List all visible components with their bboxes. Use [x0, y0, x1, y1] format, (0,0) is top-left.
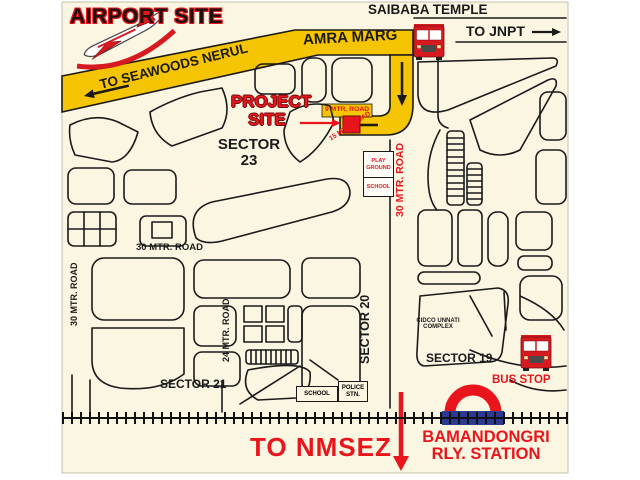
bus-icon-busstop: [521, 335, 551, 371]
school-box-bottom: SCHOOL: [296, 386, 338, 402]
road-24mtr-label: 24 MTR. ROAD: [222, 298, 231, 362]
map-canvas: [0, 0, 640, 480]
saibaba-temple-label: SAIBABA TEMPLE: [368, 3, 488, 17]
nmsez-direction-label: TO NMSEZ: [250, 434, 392, 461]
project-site-label: PROJECT SITE: [231, 93, 303, 129]
play-ground-box: PLAY GROUND: [363, 151, 394, 178]
police-station-box: POLICESTN.: [338, 381, 368, 402]
bus-icon-top: [414, 24, 444, 60]
railway-track: [62, 412, 568, 424]
sector-19-label: SECTOR 19: [426, 352, 492, 365]
airport-site-label: AIRPORT SITE: [70, 6, 223, 28]
sector-20-label: SECTOR 20: [359, 294, 372, 364]
bus-stop-label: BUS STOP: [492, 374, 551, 386]
road-30mtr-horizontal-label: 30 MTR. ROAD: [136, 243, 203, 253]
road-30mtr-left-label: 30 MTR. ROAD: [70, 260, 79, 326]
road-30mtr-project-label: 30 MTR. ROAD: [395, 137, 406, 217]
jnpt-direction-label: TO JNPT: [466, 24, 525, 39]
bamandongri-station-label: BAMANDONGRI RLY. STATION: [412, 429, 560, 464]
road-9mtr-label: 9 MTR. ROAD: [325, 106, 369, 113]
sector-23-label: SECTOR 23: [213, 137, 285, 169]
school-box-sector23: SCHOOL: [363, 177, 394, 197]
sector-21-label: SECTOR 21: [160, 378, 226, 391]
cidco-unnati-complex-label: CIDCO UNNATI COMPLEX: [412, 318, 464, 331]
